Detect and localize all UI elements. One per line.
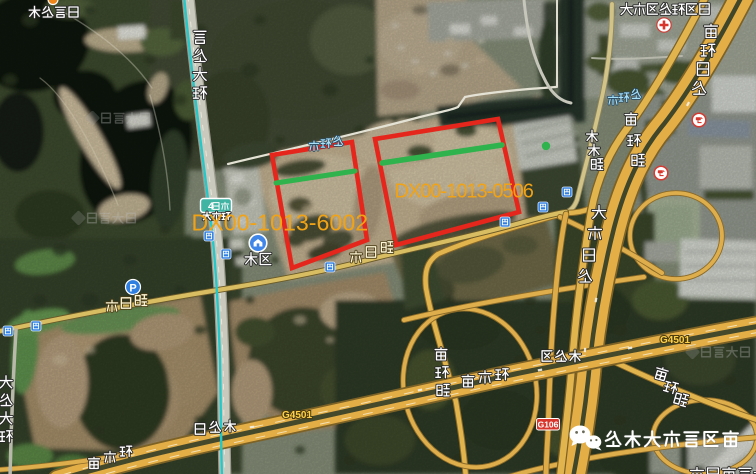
svg-text:G4501: G4501	[660, 335, 690, 346]
svg-text:G106: G106	[538, 420, 559, 430]
svg-text:DX00-1013-0506: DX00-1013-0506	[395, 181, 534, 203]
svg-text:P: P	[129, 283, 136, 295]
svg-text:DX00-1013-6002: DX00-1013-6002	[192, 210, 369, 236]
svg-text:G4501: G4501	[282, 410, 312, 421]
